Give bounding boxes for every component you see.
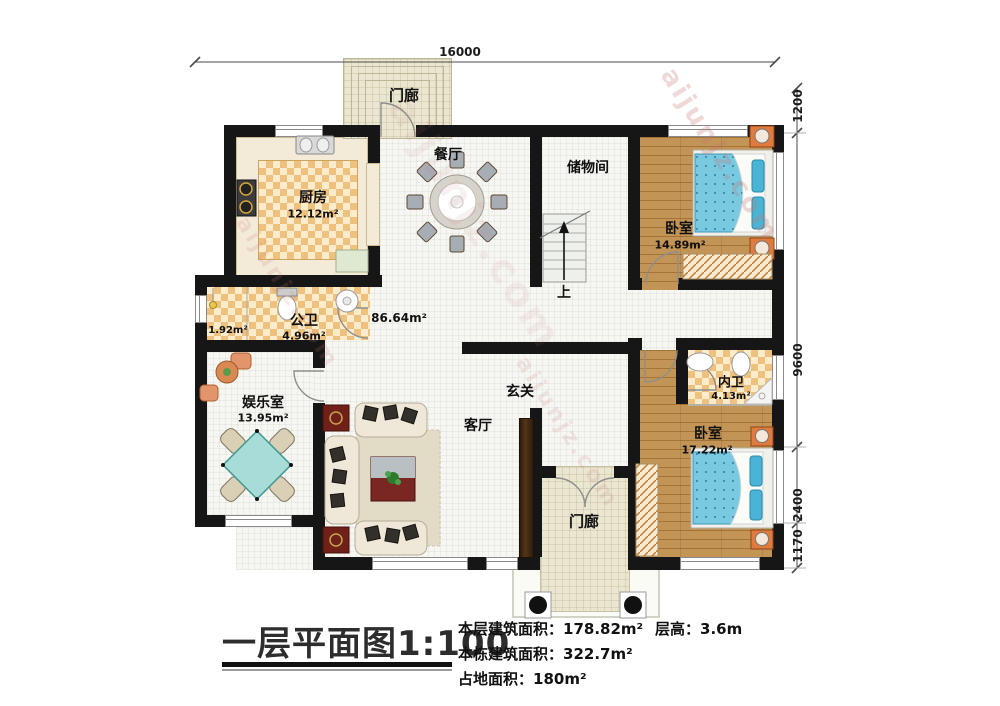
room-label-porch-bottom: 门廊: [569, 515, 599, 530]
stat-story-height-label: 层高：: [655, 620, 700, 638]
stat-building-area-label: 本栋建筑面积：: [458, 645, 563, 663]
door-hall-right: [585, 478, 614, 507]
door-bedroom-top: [646, 252, 678, 284]
stat-building-area-value: 322.7m²: [563, 645, 633, 663]
porch-columns: [525, 592, 646, 618]
stat-story-height-value: 3.6m: [700, 620, 742, 638]
stairs-up-label: 上: [557, 286, 571, 300]
room-label-entertainment: 娱乐室: [242, 396, 284, 410]
stat-story-height: 层高：3.6m: [655, 618, 742, 639]
floor-plan: aijunjz.com aijunjz.com aijunjz.com aiju…: [0, 0, 1000, 706]
door-bedroom-bottom: [645, 350, 677, 382]
dim-top: 16000: [439, 45, 481, 59]
door-hall-left: [556, 478, 585, 507]
dim-right-4: 1170: [791, 529, 805, 562]
game-table: [218, 426, 297, 504]
furniture-layer: [0, 0, 1000, 706]
kitchen-board: [336, 250, 368, 272]
side-table-set: [200, 353, 251, 401]
room-label-bath-public: 公卫: [290, 314, 318, 328]
sofa-set: [323, 403, 440, 555]
room-label-porch-top: 门廊: [389, 89, 419, 104]
double-sink-icon: [687, 352, 750, 376]
room-label-dining: 餐厅: [434, 148, 462, 162]
door-entertainment: [294, 371, 324, 401]
stat-floor-area-value: 178.82m²: [563, 620, 643, 638]
open-area-value: 86.64m²: [371, 312, 427, 324]
room-area-bedroom-bottom: 17.22m²: [681, 445, 732, 456]
stat-floor-area: 本层建筑面积：178.82m²: [458, 618, 643, 639]
stat-land-area: 占地面积：180m²: [458, 668, 587, 689]
room-label-bedroom-bottom: 卧室: [694, 427, 722, 441]
room-label-bedroom-top: 卧室: [665, 222, 693, 236]
room-label-living: 客厅: [464, 419, 492, 433]
room-label-bath-private: 内卫: [718, 377, 744, 390]
room-label-storage: 储物间: [567, 161, 609, 175]
dining-table: [407, 152, 507, 252]
stat-land-area-label: 占地面积：: [458, 670, 533, 688]
bed-top: [683, 126, 774, 279]
stat-floor-area-label: 本层建筑面积：: [458, 620, 563, 638]
title-underline-thin: [222, 669, 452, 671]
room-area-kitchen: 12.12m²: [287, 209, 338, 220]
room-area-bath-public: 4.96m²: [282, 331, 325, 342]
room-area-bath-public-2: 1.92m²: [208, 326, 247, 336]
room-area-bedroom-top: 14.89m²: [654, 240, 705, 251]
lamp-icon: [210, 288, 217, 309]
room-label-hall: 玄关: [506, 385, 534, 399]
door-porch-top: [381, 103, 415, 137]
kitchen-sink-icon: [296, 136, 334, 154]
dim-right-2: 9600: [791, 343, 805, 376]
washbasin-icon: [336, 290, 358, 312]
room-label-kitchen: 厨房: [299, 191, 327, 205]
dim-right-3: 2400: [791, 488, 805, 521]
stairs: [540, 211, 590, 282]
door-bath-public: [338, 308, 368, 338]
stove-icon: [237, 180, 256, 216]
dim-right-1: 1200: [791, 89, 805, 122]
room-area-entertainment: 13.95m²: [237, 413, 288, 424]
stat-building-area: 本栋建筑面积：322.7m²: [458, 643, 633, 664]
title-underline: [222, 662, 452, 667]
stat-land-area-value: 180m²: [533, 670, 587, 688]
room-area-bath-private: 4.13m²: [711, 392, 750, 402]
